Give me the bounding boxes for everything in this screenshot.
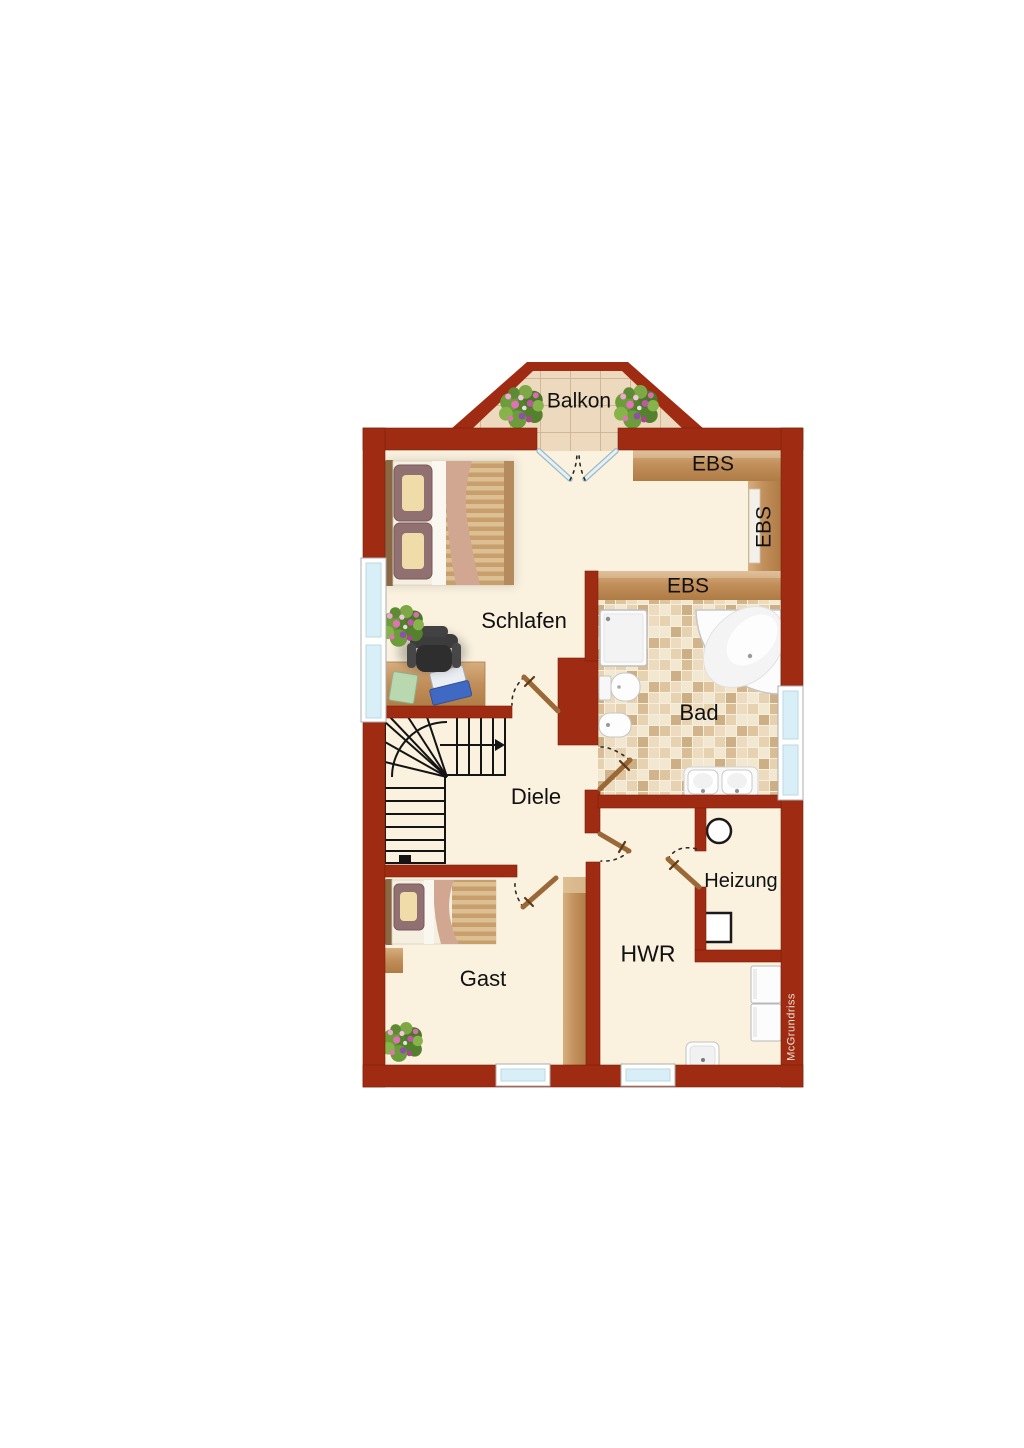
window-hwr <box>621 1064 675 1086</box>
window-bad <box>778 686 803 800</box>
heater-icon <box>704 913 731 942</box>
room-label-gast: Gast <box>460 968 506 990</box>
washer-dryer-icon <box>751 966 781 1041</box>
double-sink-icon <box>684 767 758 798</box>
window-schlafen <box>361 558 386 722</box>
room-label-bad: Bad <box>679 702 718 724</box>
notepad-icon <box>389 671 418 704</box>
wardrobe-label-top: EBS <box>692 454 734 475</box>
double-bed-icon <box>385 459 516 587</box>
floorplan: Balkon EBS EBS EBS Schlafen Bad Diele He… <box>0 0 1024 1448</box>
room-label-balkon: Balkon <box>547 391 611 412</box>
room-label-heizung: Heizung <box>704 871 777 891</box>
toilet-icon <box>599 673 640 701</box>
wardrobe-label-right: EBS <box>754 506 775 548</box>
boiler-icon <box>707 819 731 843</box>
watermark: McGrundriss <box>787 993 798 1061</box>
floorplan-drawing <box>0 0 1024 1448</box>
nightstand-icon <box>383 948 403 973</box>
window-gast <box>496 1064 550 1086</box>
wardrobe-label-middle: EBS <box>667 576 709 597</box>
shower-icon <box>600 610 647 666</box>
room-label-diele: Diele <box>511 786 561 808</box>
wood-partition <box>563 877 588 1065</box>
bidet-icon <box>599 713 631 737</box>
room-label-schlafen: Schlafen <box>481 610 567 632</box>
room-label-hwr: HWR <box>621 943 676 966</box>
